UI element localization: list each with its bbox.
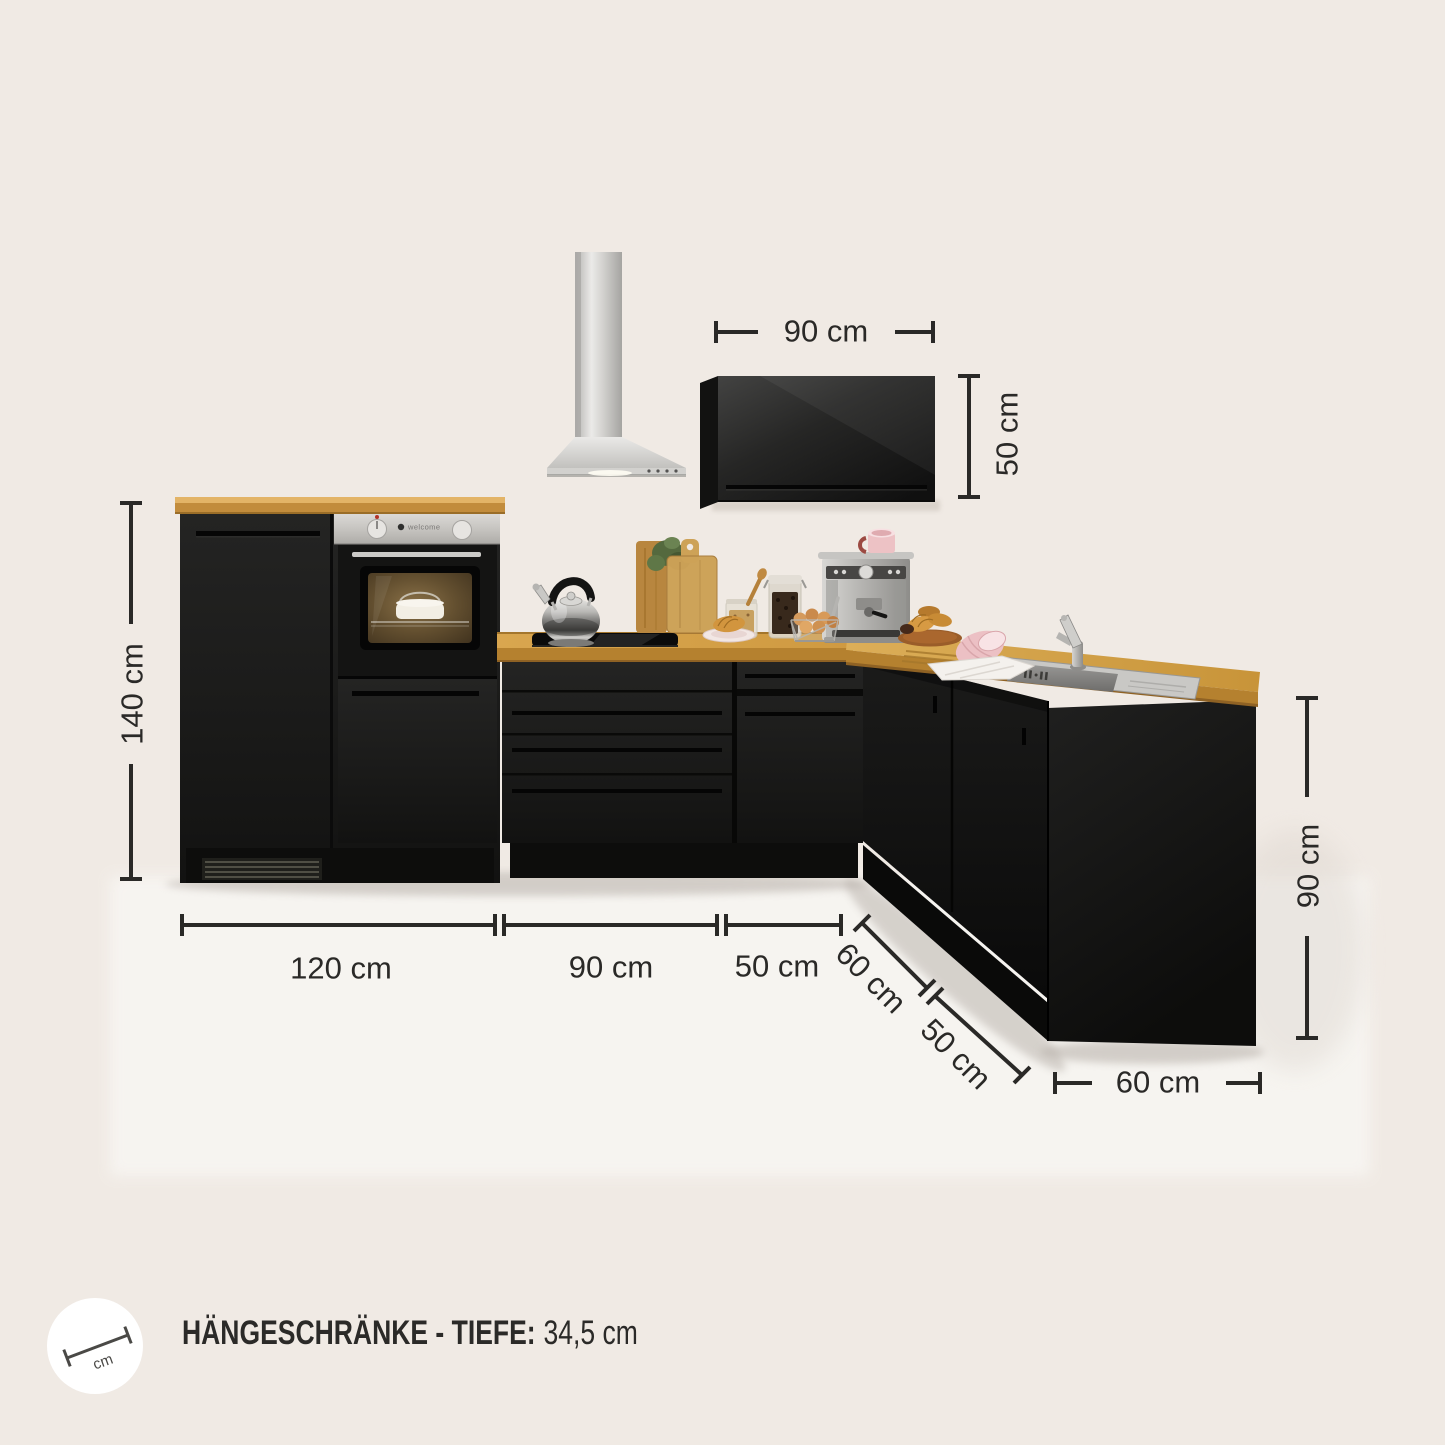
oven: welcome xyxy=(334,514,500,843)
oven-handle xyxy=(352,552,481,557)
drawer-handle xyxy=(512,748,722,752)
hood-lamp xyxy=(588,470,632,476)
door-cabinet-handle xyxy=(745,712,855,716)
oven-drawer xyxy=(338,679,497,843)
machine-dial xyxy=(859,565,873,579)
base-plinth xyxy=(510,843,858,878)
oven-knob-right xyxy=(453,521,472,540)
dim-base-run-mid-label: 90 cm xyxy=(569,950,653,985)
dim-base-run-left-label: 120 cm xyxy=(290,951,392,986)
dim-wall-cabinet-height-line xyxy=(958,376,980,497)
dim-return-height-label: 90 cm xyxy=(1291,824,1326,908)
drawer-handle xyxy=(512,789,722,793)
dim-tall-unit-height-label: 140 cm xyxy=(115,643,150,745)
oven-brand-text: welcome xyxy=(407,523,440,532)
fridge-handle xyxy=(196,531,320,536)
door-cabinet-drawer-handle xyxy=(745,674,855,678)
dim-base-run-right-label: 50 cm xyxy=(735,949,819,984)
wall-cabinet xyxy=(700,376,935,509)
corner-door-handle xyxy=(1022,728,1026,745)
wall-cabinet-handle xyxy=(726,485,927,489)
dim-wall-cabinet-width-label: 90 cm xyxy=(784,314,868,349)
end-panel xyxy=(1048,700,1256,1046)
cutting-boards xyxy=(636,537,717,633)
footer-caption-label: HÄNGESCHRÄNKE - TIEFE: xyxy=(182,1314,536,1353)
drawer-cabinet xyxy=(502,662,732,843)
kitchen-dimension-figure: welcome xyxy=(0,0,1445,1445)
pink-mug xyxy=(860,529,895,554)
dim-return-width-label: 60 cm xyxy=(1116,1065,1200,1100)
measure-badge: cm xyxy=(47,1298,143,1394)
oven-indicator-light xyxy=(375,515,379,519)
corner-door-handle xyxy=(933,696,937,713)
dim-wall-cabinet-height-label: 50 cm xyxy=(990,392,1025,476)
vent-grille xyxy=(202,858,322,880)
tall-cabinet: welcome xyxy=(175,497,505,883)
drawer-handle xyxy=(512,711,722,715)
tall-worktop xyxy=(175,497,505,503)
footer-caption-value: 34,5 cm xyxy=(544,1314,638,1353)
range-hood xyxy=(547,252,686,477)
footer-caption: HÄNGESCHRÄNKE - TIEFE: 34,5 cm xyxy=(182,1311,638,1355)
oven-brand-logo xyxy=(398,524,404,530)
kitchen-photo: welcome xyxy=(0,0,1445,1445)
base-run xyxy=(497,632,863,878)
